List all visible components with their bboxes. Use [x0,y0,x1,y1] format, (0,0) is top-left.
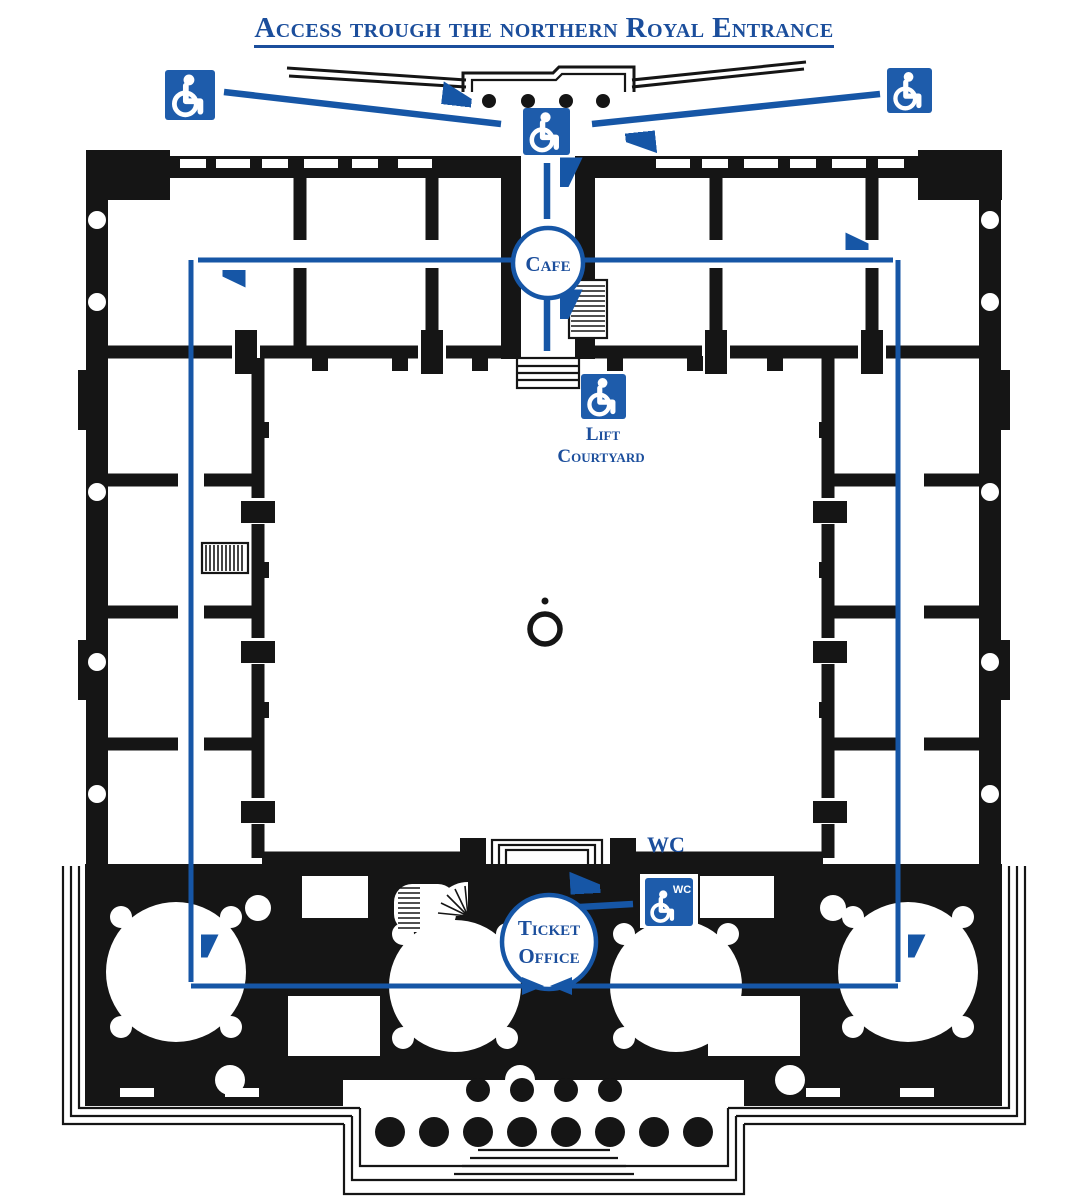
lift-label-line2: Courtyard [557,446,644,467]
courtyard-steps [517,358,579,388]
wheelchair-icon [165,70,215,120]
wc-icon-badge: WC [673,884,691,896]
ticket-office-label-line1: Ticket [518,916,580,940]
colonnade-columns [375,1078,713,1147]
courtyard-fountain [530,614,560,644]
lift-label-line1: Lift [586,424,621,445]
stair-hatch-west [202,543,248,573]
wheelchair-wc-icon: WC [645,878,693,926]
ticket-office-label-line2: Office [518,944,579,968]
route-arrow-ticket-to-wc [580,904,633,907]
wc-label: WC [647,832,685,857]
accessibility-floor-plan: Cafe Ticket Office [0,0,1088,1200]
floor-plan-svg: Cafe Ticket Office [0,0,1088,1200]
page-title-text: Access trough the northern Royal Entranc… [254,12,833,48]
wheelchair-icon [523,108,570,155]
route-arrow-from-west [224,92,501,124]
north-portico [287,62,806,108]
route-arrow-from-east [592,94,880,124]
page-title: Access trough the northern Royal Entranc… [0,12,1088,45]
wheelchair-icon [581,374,626,419]
wheelchair-icon [887,68,932,113]
cafe-label: Cafe [525,252,570,276]
courtyard-pilasters [255,356,833,718]
